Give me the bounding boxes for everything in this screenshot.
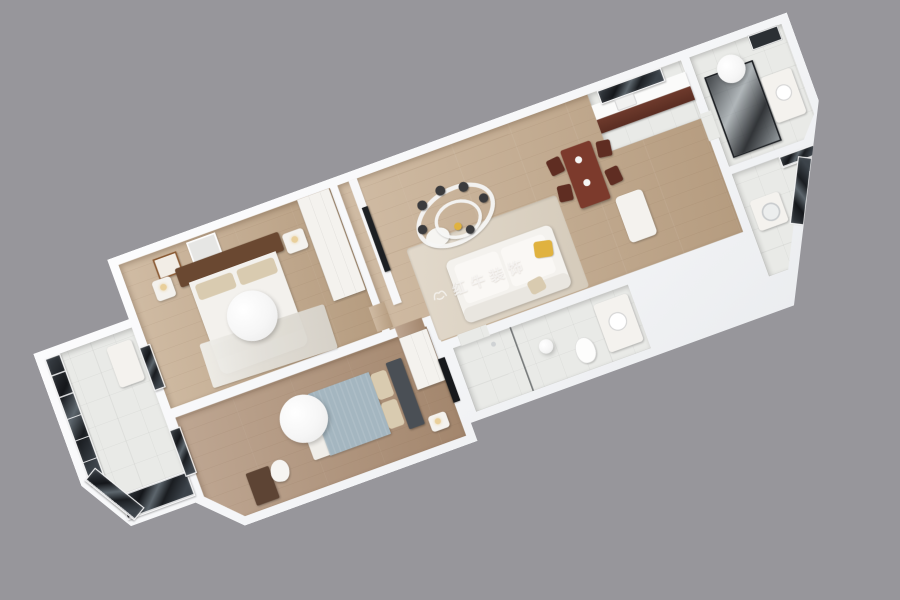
apartment-shell: 红牛装饰 — [12, 12, 889, 573]
dining-chair-3 — [595, 139, 612, 158]
render-canvas: 红牛装饰 — [0, 0, 900, 600]
floorplan-3d-model: 红牛装饰 — [12, 12, 889, 573]
living-pillow-yellow — [533, 240, 554, 259]
